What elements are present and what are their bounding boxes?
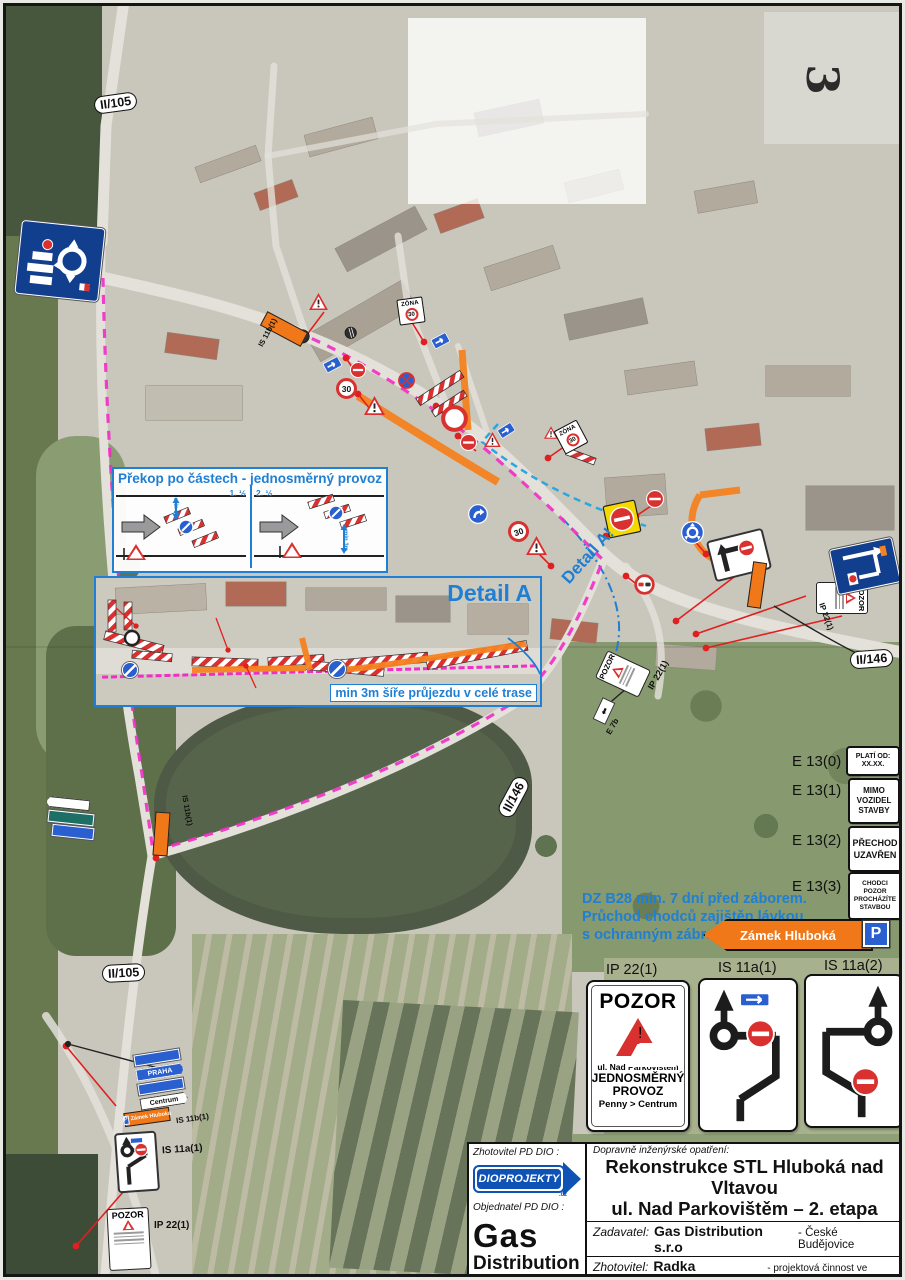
roundabout-guide-sign: [14, 220, 105, 302]
is11b-sign: Zámek Hluboká P: [703, 919, 889, 951]
road-label-II105-bottom: II/105: [102, 963, 146, 983]
e13-1-sign: MIMO VOZIDEL STAVBY: [848, 778, 900, 824]
is11a2-diagram: [806, 976, 902, 1124]
project-title-line2: ul. Nad Parkovištěm – 2. etapa: [593, 1198, 896, 1219]
is11a2-panel: [804, 974, 902, 1128]
keep-right-icon: [328, 660, 346, 678]
dioprojekty-logo: DIOPROJEKTY .cz: [473, 1162, 581, 1196]
zhotovitel-pd-label: Zhotovitel PD DIO :: [473, 1147, 581, 1158]
title-block-left: Zhotovitel PD DIO : DIOPROJEKTY .cz Obje…: [469, 1144, 587, 1274]
pozor-map-panel: POZOR: [106, 1207, 151, 1271]
zhotovitel-suffix: - projektová činnost ve výstavbě: [767, 1263, 896, 1277]
road-label-II146-right: II/146: [849, 649, 893, 670]
title-block-right: Dopravně inženýrské opatření: Rekonstruk…: [587, 1144, 902, 1274]
min-3m-label: min 3m: [172, 498, 178, 519]
parking-icon: P: [863, 921, 889, 947]
prekop-step-1: 1. ½ min 3m: [114, 486, 250, 568]
is11a1-code: IS 11a(1): [718, 960, 777, 976]
prekop-step-2: 2. ½ min 3m: [250, 486, 386, 568]
keep-right-icon: [122, 662, 138, 678]
detail-a-box: Detail A min 3m šíře průjezdu v celé tra…: [94, 576, 542, 707]
sign-code-label: IP 22(1): [154, 1220, 189, 1231]
zadavatel-label: Zadavatel:: [593, 1225, 649, 1239]
ip22-title: POZOR: [599, 990, 676, 1014]
gas-distribution-wordmark: Gas Distribution: [473, 1219, 581, 1273]
prekop-title: Překop po částech - jednosměrný provoz: [114, 469, 386, 486]
e13-1-code: E 13(1): [792, 782, 841, 799]
logo-suffix: .cz: [559, 1192, 567, 1198]
e13-2-sign: PŘECHOD UZAVŘEN: [848, 826, 902, 872]
is11b-map-sign: [152, 812, 170, 857]
e13-2-code: E 13(2): [792, 832, 841, 849]
title-block: Zhotovitel PD DIO : DIOPROJEKTY .cz Obje…: [467, 1142, 902, 1276]
speed-limit-30-sign: 30: [336, 378, 357, 399]
header-label: Dopravně inženýrské opatření:: [593, 1145, 896, 1156]
ip22-line3: Penny > Centrum: [599, 1099, 677, 1110]
ip22-panel: POZOR ! ul. Nad Parkovištěm JEDNOSMĚRNÝ …: [586, 980, 690, 1132]
logo-arrow-tip: [563, 1162, 581, 1196]
detail-a-title: Detail A: [447, 580, 532, 607]
detail-a-note: min 3m šíře průjezdu v celé trase: [330, 684, 537, 702]
min-3m-label: min 3m: [342, 530, 348, 551]
zhotovitel-value: Radka Bambulová: [653, 1258, 763, 1277]
is11a1-panel: [698, 978, 798, 1132]
e13-0-sign: PLATÍ OD: XX.XX.: [846, 746, 900, 776]
e13-0-code: E 13(0): [792, 753, 841, 770]
is11a2-code: IS 11a(2): [824, 958, 883, 974]
zhotovitel-label: Zhotovitel:: [593, 1260, 648, 1274]
warning-triangle-icon: [122, 1220, 135, 1231]
e13-3-sign: CHODCI POZOR PROCHÁZÍTE STAVBOU: [848, 872, 902, 920]
objednatel-label: Objednatel PD DIO :: [473, 1202, 581, 1213]
prekop-diagram-box: Překop po částech - jednosměrný provoz 1…: [112, 467, 388, 573]
warning-triangle-icon: [846, 592, 856, 604]
parking-icon: P: [122, 1115, 129, 1125]
is11a-map-panel: [114, 1131, 160, 1194]
orange-arrow-sign: Zámek Hluboká: [703, 919, 873, 951]
plan-sheet: ZÓNA 30 ZÓNA 30 30 30 POZOR IP 22(1) ⬅ E…: [3, 3, 902, 1277]
scan-fade: [408, 18, 646, 204]
warning-triangle-icon: !: [616, 1018, 660, 1056]
zadavatel-suffix: - České Budějovice: [798, 1227, 896, 1251]
zone-30-sign: ZÓNA 30: [396, 296, 425, 325]
project-title-line1: Rekonstrukce STL Hluboká nad Vltavou: [593, 1156, 896, 1198]
page-number: 3: [796, 64, 847, 95]
ip22-line2: PROVOZ: [613, 1085, 664, 1098]
is11a1-diagram: [700, 980, 796, 1128]
zadavatel-value: Gas Distribution s.r.o: [654, 1223, 794, 1255]
ip22-code: IP 22(1): [606, 962, 657, 978]
